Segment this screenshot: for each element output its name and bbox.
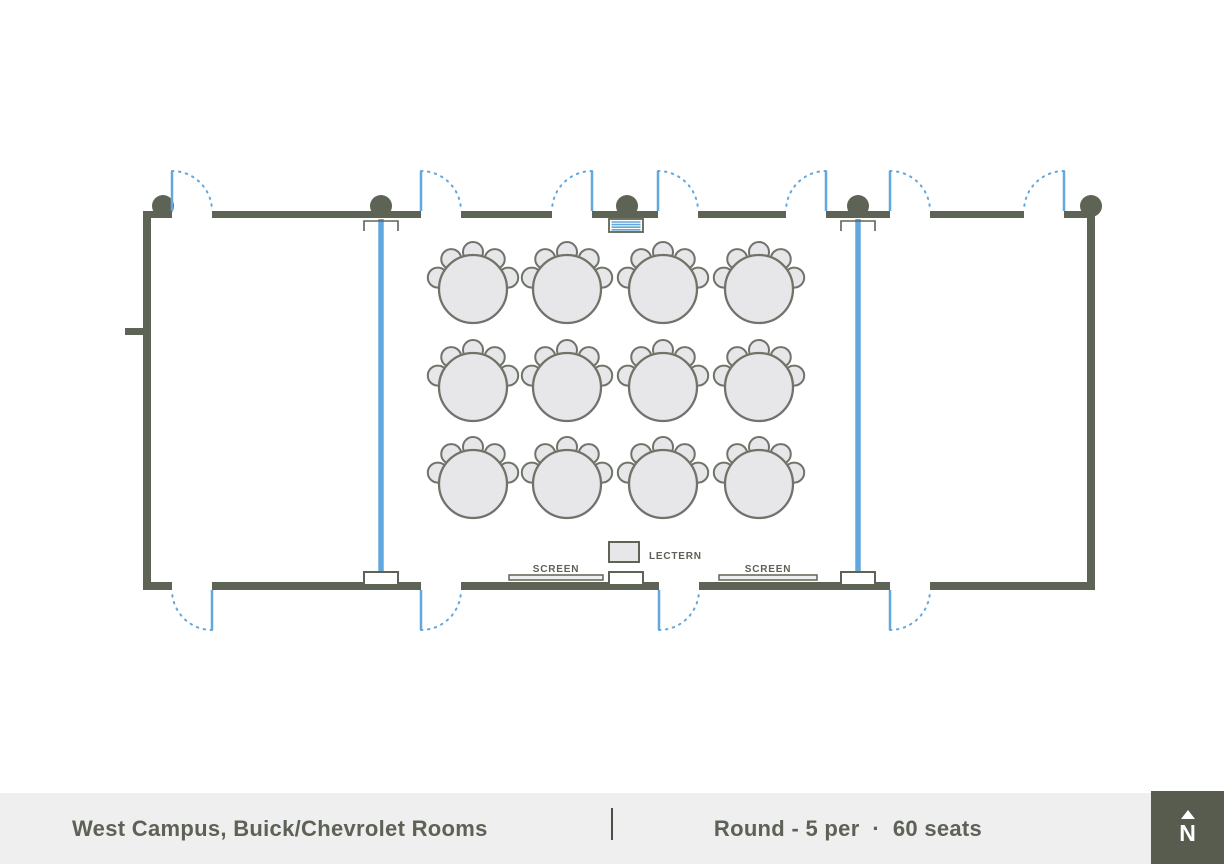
table-top (629, 450, 697, 518)
wall-segment (1087, 211, 1095, 590)
screen-fixture (719, 575, 817, 580)
table-top (725, 450, 793, 518)
column (1080, 195, 1102, 217)
column (847, 195, 869, 217)
floor-plan: SCREEN SCREEN LECTERN (0, 0, 1224, 793)
door-swing-arc (786, 171, 826, 211)
lectern-label: LECTERN (649, 551, 702, 562)
door-swing-arc (172, 590, 212, 630)
door-swing-arc (172, 171, 212, 211)
table-top (439, 353, 507, 421)
round-table (618, 242, 708, 323)
wall-segment (143, 211, 151, 590)
screen-right-label: SCREEN (745, 564, 791, 575)
door-swing-arc (421, 171, 461, 211)
round-table (522, 242, 612, 323)
wall-segment (461, 211, 552, 218)
door-swing-arc (421, 590, 461, 630)
round-table (618, 340, 708, 421)
round-table (714, 340, 804, 421)
table-top (439, 450, 507, 518)
north-arrow-icon (1181, 810, 1195, 819)
round-table (714, 242, 804, 323)
lectern-fixture (609, 542, 639, 562)
round-table (714, 437, 804, 518)
floor-plan-geometry (125, 171, 1102, 630)
wall-segment (698, 211, 786, 218)
door-swing-arc (890, 171, 930, 211)
layout-summary: Round - 5 per · 60 seats (613, 793, 1083, 864)
column (370, 195, 392, 217)
air-wall-pocket (841, 572, 875, 585)
table-top (725, 353, 793, 421)
wall-segment (930, 211, 1024, 218)
north-label: N (1179, 822, 1196, 845)
round-table (522, 437, 612, 518)
round-table (428, 437, 518, 518)
north-compass: N (1151, 791, 1224, 864)
screen-left-label: SCREEN (533, 564, 579, 575)
door-swing-arc (890, 590, 930, 630)
column (616, 195, 638, 217)
table-top (533, 353, 601, 421)
door-swing-arc (658, 171, 698, 211)
table-top (629, 353, 697, 421)
wall-stub (125, 328, 145, 335)
table-top (629, 255, 697, 323)
footer-bar: West Campus, Buick/Chevrolet Rooms Round… (0, 793, 1224, 864)
round-table (428, 242, 518, 323)
door-swing-arc (1024, 171, 1064, 211)
door-swing-arc (552, 171, 592, 211)
table-top (533, 255, 601, 323)
round-table (522, 340, 612, 421)
round-table (428, 340, 518, 421)
round-table (618, 437, 708, 518)
door-swing-arc (659, 590, 699, 630)
table-top (725, 255, 793, 323)
air-wall-pocket (609, 572, 643, 585)
floor-plan-page: SCREEN SCREEN LECTERN West Campus, Buick… (0, 0, 1224, 864)
air-wall-pocket (364, 572, 398, 585)
wall-segment (930, 582, 1095, 590)
room-title: West Campus, Buick/Chevrolet Rooms (72, 793, 488, 864)
column (152, 195, 174, 217)
table-top (439, 255, 507, 323)
table-top (533, 450, 601, 518)
screen-fixture (509, 575, 603, 580)
